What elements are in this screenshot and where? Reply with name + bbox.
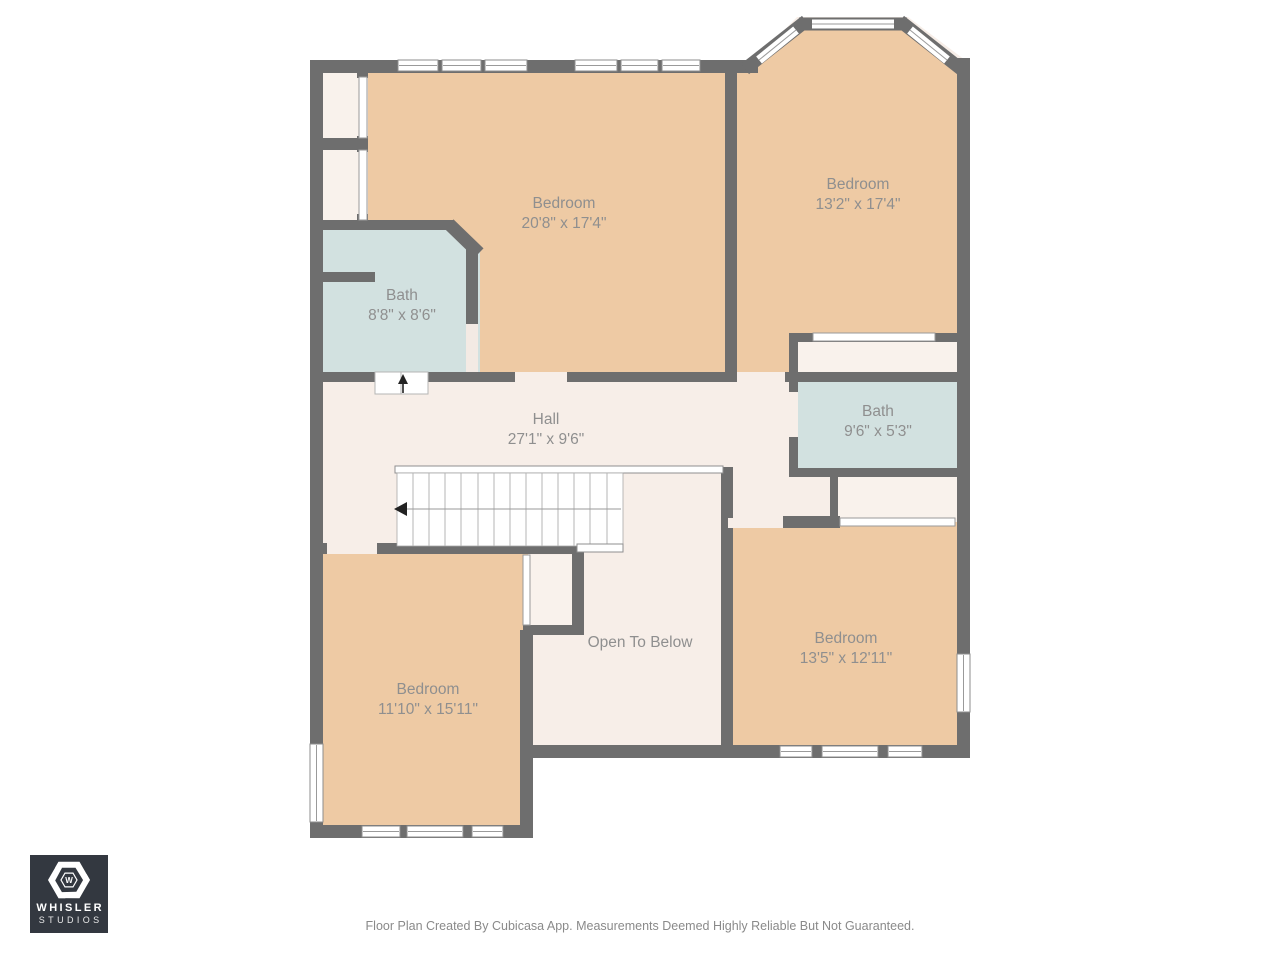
bath-1-side-opening [466,324,478,372]
floor-plan-drawing [0,0,1280,960]
wall-closet-stub-top [357,60,368,78]
room-label-hall: Hall 27'1" x 9'6" [508,410,584,450]
room-dimensions: 13'2" x 17'4" [815,195,900,215]
room-label-bath-1: Bath 8'8" x 8'6" [368,286,436,326]
room-label-bedroom-1: Bedroom 20'8" x 17'4" [521,194,606,234]
floor-plan-page: Bedroom 20'8" x 17'4" Bedroom 13'2" x 17… [0,0,1280,960]
bath-1-entry-door [375,372,428,394]
closet-right-bottom-sliding-door [840,518,955,526]
bath-2-door-opening [789,392,798,437]
room-dimensions: 27'1" x 9'6" [508,430,584,450]
room-dimensions: 9'6" x 5'3" [844,422,912,442]
closet-a-floor [323,73,359,138]
room-label-bedroom-2: Bedroom 13'2" x 17'4" [815,175,900,215]
wall-bedroom3-right [520,630,533,838]
room-name: Bedroom [815,175,900,195]
closet-a-sliding-door [359,77,367,138]
wall-bath1-top [310,220,453,230]
wall-closet-rb-left [830,471,838,521]
room-dimensions: 20'8" x 17'4" [521,214,606,234]
logo-name-line1: WHISLER [34,902,104,914]
stair-bottom-edge [577,544,623,552]
closet-right-top-floor [798,342,957,373]
outer-wall-left [310,60,323,838]
closet-understair-floor [530,555,572,625]
room-name: Open To Below [588,633,693,653]
wall-bedroom4-top [783,516,840,528]
room-dimensions: 13'5" x 12'11" [800,649,892,669]
wall-bedroom-divider [725,60,737,372]
wall-bath1-stub [310,272,375,282]
closet-right-top-sliding-door [813,333,935,341]
logo-monogram: W [65,876,73,885]
room-label-bath-2: Bath 9'6" x 5'3" [844,402,912,442]
wall-closet-understair-bottom [523,625,584,635]
room-label-bedroom-3: Bedroom 11'10" x 15'11" [378,680,478,720]
room-name: Hall [508,410,584,430]
bedroom-2-door-opening [737,372,785,382]
room-name: Bedroom [800,629,892,649]
room-name: Bath [844,402,912,422]
bedroom-4-door-opening [728,518,783,528]
room-dimensions: 11'10" x 15'11" [378,700,478,720]
room-label-open-to-below: Open To Below [588,633,693,653]
room-label-bedroom-4: Bedroom 13'5" x 12'11" [800,629,892,669]
bedroom-3-door-opening [327,543,377,554]
closet-b-sliding-door [359,150,367,220]
stair-top-edge [395,466,723,473]
room-name: Bedroom [378,680,478,700]
bedroom-1-door-opening [515,372,567,382]
room-name: Bath [368,286,436,306]
room-dimensions: 8'8" x 8'6" [368,306,436,326]
wall-closet-understair-right [572,547,584,635]
wall-bath1-right [466,246,478,324]
wall-bath2-bottom [789,468,957,477]
hexagon-logo-icon: W [30,855,108,901]
closet-right-bottom-floor [838,477,957,518]
room-name: Bedroom [521,194,606,214]
closet-b-floor [323,150,359,220]
closet-understair-sliding-door [523,555,530,625]
outer-wall-right [957,58,970,758]
wall-stairwell-right [721,467,733,758]
footer-disclaimer: Floor Plan Created By Cubicasa App. Meas… [0,919,1280,933]
